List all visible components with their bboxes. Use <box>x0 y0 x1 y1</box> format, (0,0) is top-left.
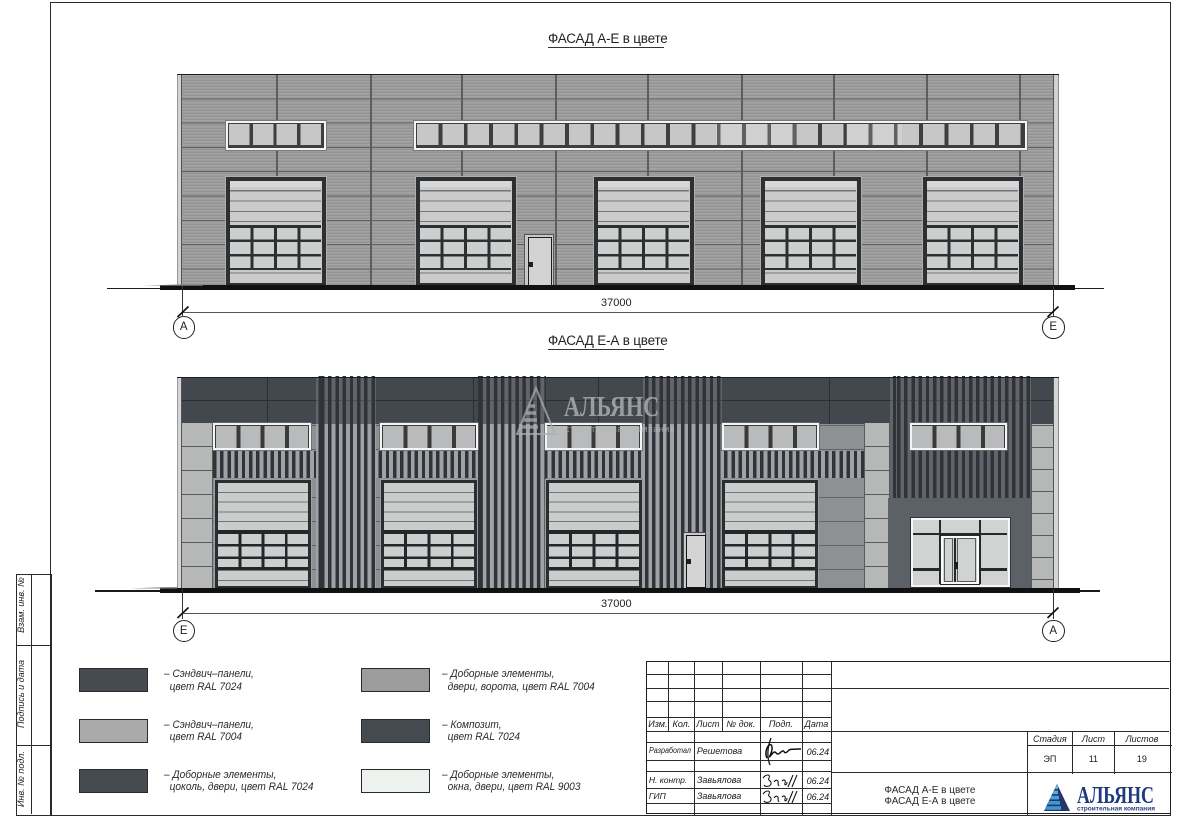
svg-text:строительная компания: строительная компания <box>1077 805 1155 812</box>
